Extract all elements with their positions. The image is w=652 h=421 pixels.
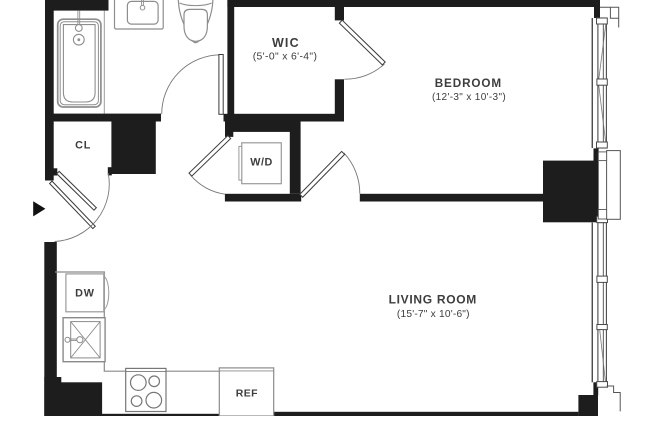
svg-text:LIVING ROOM: LIVING ROOM: [389, 292, 477, 306]
svg-text:CL: CL: [75, 140, 91, 152]
svg-text:(12'-3" x 10'-3"): (12'-3" x 10'-3"): [432, 92, 506, 103]
svg-text:BEDROOM: BEDROOM: [435, 77, 502, 90]
svg-text:W/D: W/D: [250, 156, 273, 168]
svg-text:REF: REF: [236, 387, 258, 399]
svg-text:(15'-7" x 10'-6"): (15'-7" x 10'-6"): [397, 309, 470, 320]
svg-text:DW: DW: [75, 288, 95, 300]
svg-text:(5'-0" x 6'-4"): (5'-0" x 6'-4"): [253, 51, 318, 62]
svg-text:WIC: WIC: [272, 36, 300, 50]
